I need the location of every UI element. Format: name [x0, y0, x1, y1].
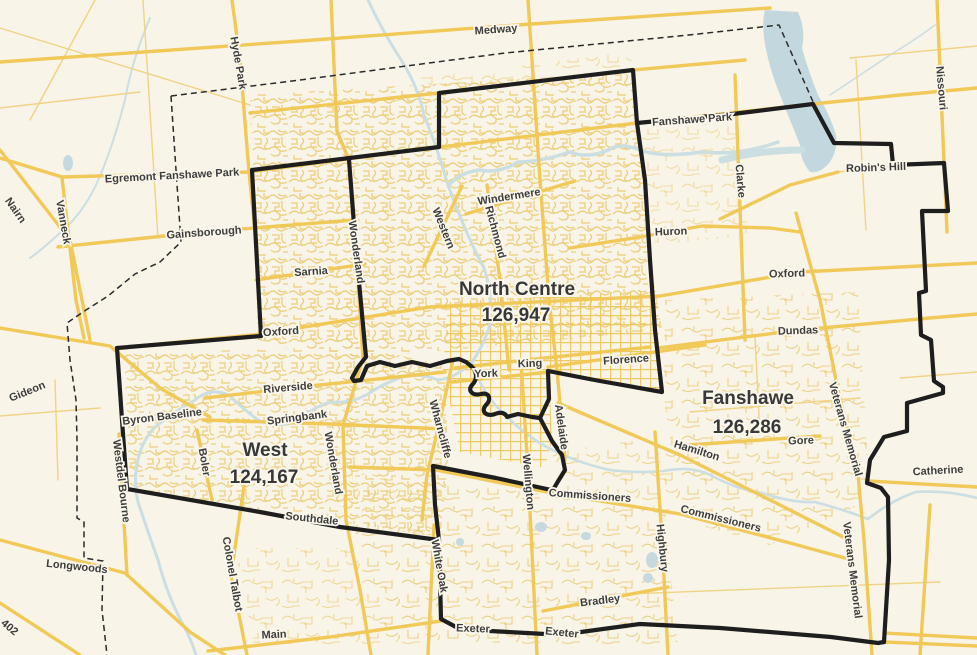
svg-text:Huron: Huron — [655, 225, 688, 238]
svg-text:126,947: 126,947 — [482, 305, 551, 326]
svg-text:126,286: 126,286 — [713, 417, 782, 438]
svg-text:Fanshawe: Fanshawe — [702, 388, 794, 409]
svg-text:Oxford: Oxford — [263, 325, 300, 339]
svg-text:Exeter: Exeter — [456, 622, 491, 635]
svg-text:North Centre: North Centre — [459, 279, 575, 300]
svg-text:Main: Main — [261, 628, 287, 641]
svg-text:West: West — [242, 440, 288, 461]
svg-text:Robin's Hill: Robin's Hill — [846, 161, 906, 175]
svg-text:Gore: Gore — [788, 435, 814, 448]
svg-text:King: King — [518, 358, 543, 371]
svg-text:York: York — [474, 368, 499, 381]
svg-text:Sarnia: Sarnia — [294, 265, 329, 279]
svg-text:124,167: 124,167 — [230, 467, 299, 488]
svg-text:Oxford: Oxford — [769, 267, 805, 280]
svg-text:Dundas: Dundas — [778, 324, 819, 337]
